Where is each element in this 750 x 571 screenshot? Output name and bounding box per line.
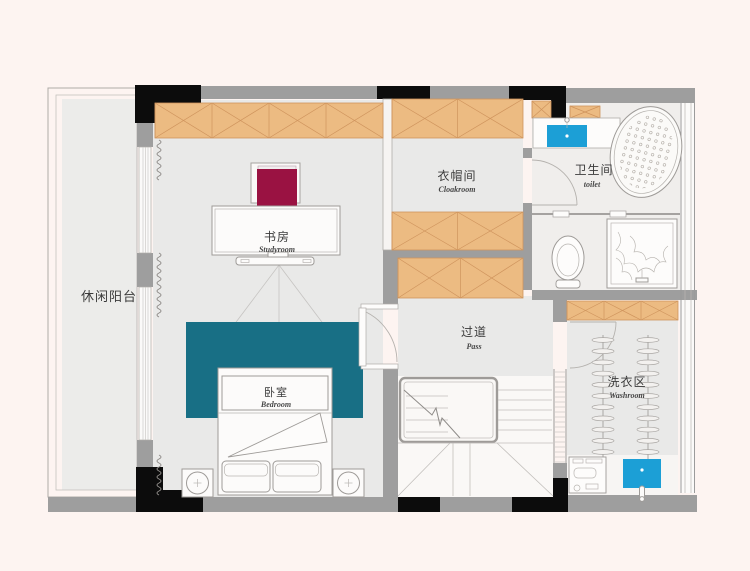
toilet-label-zh: 卫生间 [574, 163, 613, 177]
pass-label-en: Pass [466, 342, 481, 351]
pillow-right [273, 461, 321, 492]
bedroom-label-en: Bedroom [260, 400, 291, 409]
washroom-label-zh: 洗衣区 [607, 374, 646, 389]
partition-study-cloakroom [383, 99, 392, 250]
toilet [552, 236, 584, 288]
shower [607, 219, 677, 288]
desk-chair [251, 163, 300, 206]
washroom-sink [623, 459, 661, 488]
stair-floor [398, 376, 553, 497]
pillow-left [222, 461, 270, 492]
studyroom-label-en: Studyroom [259, 245, 295, 254]
cloakroom-label-zh: 衣帽间 [437, 168, 476, 183]
toilet-label-en: toilet [584, 180, 601, 189]
washroom-label-en: Washroom [609, 391, 644, 400]
left-windows [139, 147, 151, 440]
pass-label-zh: 过道 [461, 325, 487, 339]
bedroom-label-zh: 卧室 [264, 385, 288, 399]
studyroom-label-zh: 书房 [264, 229, 290, 244]
nightstand-left [182, 469, 213, 497]
washing-machine [569, 457, 606, 493]
floor-plan: 书房 Studyroom 卧室 Bedroom [0, 0, 750, 571]
cloakroom: 衣帽间 Cloakroom [437, 168, 476, 194]
bedroom: 卧室 Bedroom [182, 322, 364, 497]
vanity-counter [533, 118, 620, 148]
cloakroom-label-en: Cloakroom [439, 185, 476, 194]
balcony-label-zh: 休闲阳台 [81, 289, 137, 304]
chair-seat [257, 169, 297, 206]
nightstand-right [333, 469, 364, 497]
